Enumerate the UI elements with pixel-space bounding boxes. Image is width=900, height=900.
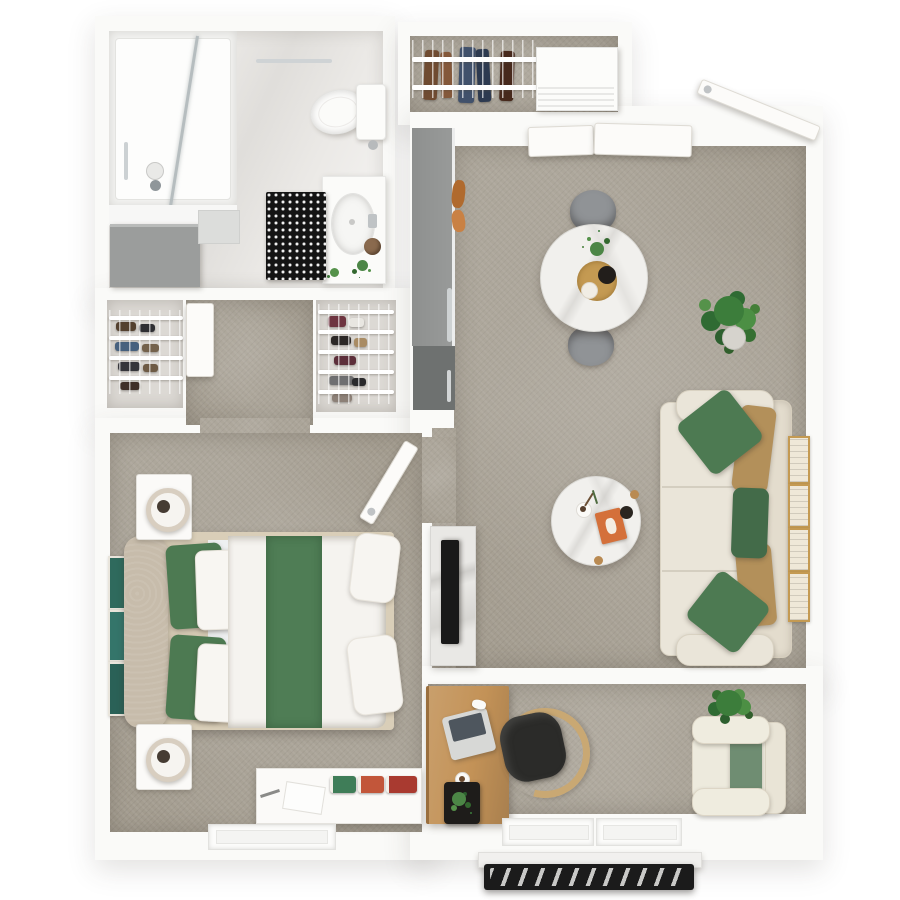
bath-plant: [357, 260, 368, 271]
tv: [441, 540, 459, 644]
rcloset-wire-grid: [318, 304, 396, 404]
lcloset-wire-grid: [109, 310, 183, 394]
den-window-1-pane: [509, 825, 589, 840]
centerpiece-bowl-white: [581, 282, 598, 299]
closet-wire-grid: [412, 40, 538, 98]
wall-frame-2: [788, 484, 810, 528]
bed-fold-bottom: [345, 633, 404, 717]
sofa-pillow-green-middle: [731, 487, 769, 558]
coffee-table-knob-s: [594, 556, 603, 565]
bath-vase: [364, 238, 381, 255]
den-window-2-pane: [603, 825, 677, 840]
bedroom-doorway-opening: [422, 437, 456, 523]
shower-drain: [146, 162, 164, 180]
sink-drain: [349, 219, 355, 225]
balcony-railing-slats: [490, 868, 688, 886]
table-plant: [590, 242, 604, 256]
coffee-cup-center: [580, 506, 586, 512]
laptop-screen: [448, 712, 486, 742]
desk-plant: [452, 792, 466, 806]
bedroom-window-pane: [216, 830, 328, 844]
dresser-paper: [282, 781, 326, 815]
towel-rail: [256, 59, 332, 63]
wall-frame-1: [788, 436, 810, 484]
closet-door-panel-2: [594, 123, 693, 158]
cabinet-handle: [447, 288, 452, 342]
armchair-armrest-bottom: [692, 788, 770, 816]
wall-frame-4: [788, 572, 810, 622]
lamp-south-finial: [157, 750, 170, 763]
closet-door-panel-1: [527, 125, 594, 157]
centerpiece-bowl-black: [598, 266, 616, 284]
coffee-table-knob-ne: [630, 490, 639, 499]
coffee-table-bowl: [620, 506, 633, 519]
living-plant-pot: [722, 326, 746, 350]
den-window-2: [596, 818, 682, 846]
shower-towel-bar: [124, 142, 128, 180]
hallway-door: [186, 303, 214, 377]
bed-fold-top: [348, 531, 402, 604]
shower-knob: [150, 180, 161, 191]
den-plant: [716, 690, 742, 716]
lower-unit-handle: [447, 370, 451, 402]
balcony-railing: [484, 864, 694, 890]
lamp-north-finial: [157, 500, 170, 513]
dresser-magazine-2: [358, 776, 384, 793]
dresser-magazine-1: [330, 776, 356, 793]
wall-frame-3: [788, 528, 810, 572]
bed-headboard: [124, 536, 168, 728]
bath-rug: [266, 192, 326, 280]
bath-cabinet-gray: [110, 224, 200, 287]
sink-faucet: [368, 214, 377, 228]
floor-plan: [0, 0, 900, 900]
bedroom-door-handle: [366, 506, 377, 517]
bath-plant-sprig: [330, 268, 339, 277]
magazine-graphic: [604, 517, 618, 535]
armchair-cushion: [730, 736, 762, 796]
den-window-1: [502, 818, 594, 846]
toilet-tank: [356, 84, 386, 140]
bed-green-runner: [266, 536, 322, 728]
entry-door-handle: [702, 84, 712, 94]
bathroom-door-knob: [368, 140, 378, 150]
bath-cabinet-small: [198, 210, 240, 244]
closet-drawer-lines: [538, 84, 614, 107]
dresser-magazine-3: [386, 776, 417, 793]
armchair-armrest-top: [692, 716, 770, 744]
dining-chair-south: [568, 326, 614, 366]
living-plant: [714, 296, 744, 326]
bedroom-window: [208, 824, 336, 850]
